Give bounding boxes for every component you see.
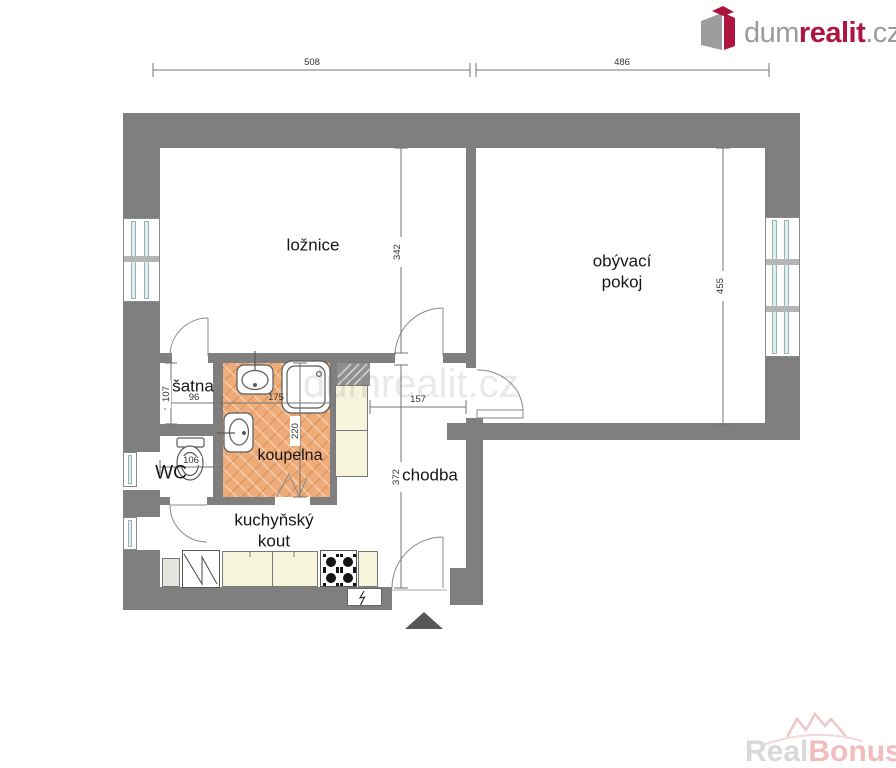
dim-342: 342 — [392, 244, 403, 260]
dim-486: 486 — [614, 57, 630, 68]
room-label-line: kout — [234, 531, 313, 552]
electric-box — [347, 588, 382, 606]
logo-part-realit: realit — [799, 17, 865, 49]
door-wc — [170, 505, 207, 542]
door-satna — [170, 318, 208, 356]
wall-segment — [466, 418, 483, 568]
logo-part-dum: dum — [744, 17, 799, 49]
bathroom-floor — [223, 363, 330, 497]
dim-157: 157 — [410, 394, 426, 405]
dim-372: 372 — [391, 469, 402, 485]
fridge — [162, 558, 180, 587]
kitchen-counter — [222, 551, 318, 587]
stove — [320, 550, 357, 587]
wall-segment — [207, 497, 275, 505]
wall-segment — [466, 148, 476, 368]
realbonus-watermark: RealBonus.cz — [745, 735, 896, 768]
wall-segment — [765, 113, 800, 217]
wall-segment — [160, 497, 170, 505]
wall-segment — [123, 490, 160, 517]
watermark-part-real: Real — [745, 735, 808, 768]
kitchen-appliance — [182, 550, 220, 588]
wall-segment — [447, 423, 800, 440]
room-label-wc: WC — [155, 461, 187, 484]
wall-segment — [208, 353, 395, 363]
entrance-arrow-icon — [405, 612, 443, 629]
floorplan-page: 508 486 342 455 96 175 157 372 107 220 1… — [0, 0, 896, 768]
wall-segment — [213, 363, 223, 505]
window — [765, 217, 800, 357]
dumrealit-logo: dumrealit.cz — [744, 17, 896, 50]
dim-455: 455 — [715, 278, 726, 294]
window — [123, 517, 137, 550]
room-label-chodba: chodba — [402, 466, 458, 487]
door-leaf-obyvaci — [477, 410, 523, 418]
door-entrance — [392, 537, 443, 588]
toilet-tank — [177, 438, 204, 447]
room-label-line: obývací — [593, 251, 652, 272]
room-label-satna: šatna — [172, 377, 214, 398]
window — [123, 218, 160, 302]
watermark-part-bonus: Bonus — [808, 735, 896, 768]
dim-107: 107 — [161, 386, 172, 402]
wall-segment — [123, 113, 160, 218]
kitchen-counter — [358, 551, 378, 587]
door-obyvaci — [477, 370, 523, 410]
wall-segment — [123, 302, 160, 452]
room-label-line: pokoj — [593, 272, 652, 293]
room-label-line: kuchyňský — [234, 510, 313, 531]
shaft-block — [337, 363, 370, 386]
wall-segment — [450, 568, 483, 605]
window — [123, 452, 137, 487]
room-label-loznice: ložnice — [287, 236, 340, 257]
logo-part-cz: .cz — [865, 17, 896, 49]
door-loznice — [395, 308, 443, 356]
room-label-kuchynsky-kout: kuchyňský kout — [234, 510, 313, 551]
wall-segment — [765, 357, 800, 440]
room-label-obyvaci-pokoj: obývací pokoj — [593, 251, 652, 292]
wall-segment — [443, 353, 466, 363]
dim-508: 508 — [304, 57, 320, 68]
hall-cabinet — [335, 385, 368, 477]
dumrealit-logo-icon — [701, 6, 735, 50]
wall-segment — [160, 424, 213, 436]
wall-segment — [160, 353, 172, 363]
wall-segment — [123, 113, 800, 148]
room-label-koupelna: koupelna — [258, 446, 323, 466]
